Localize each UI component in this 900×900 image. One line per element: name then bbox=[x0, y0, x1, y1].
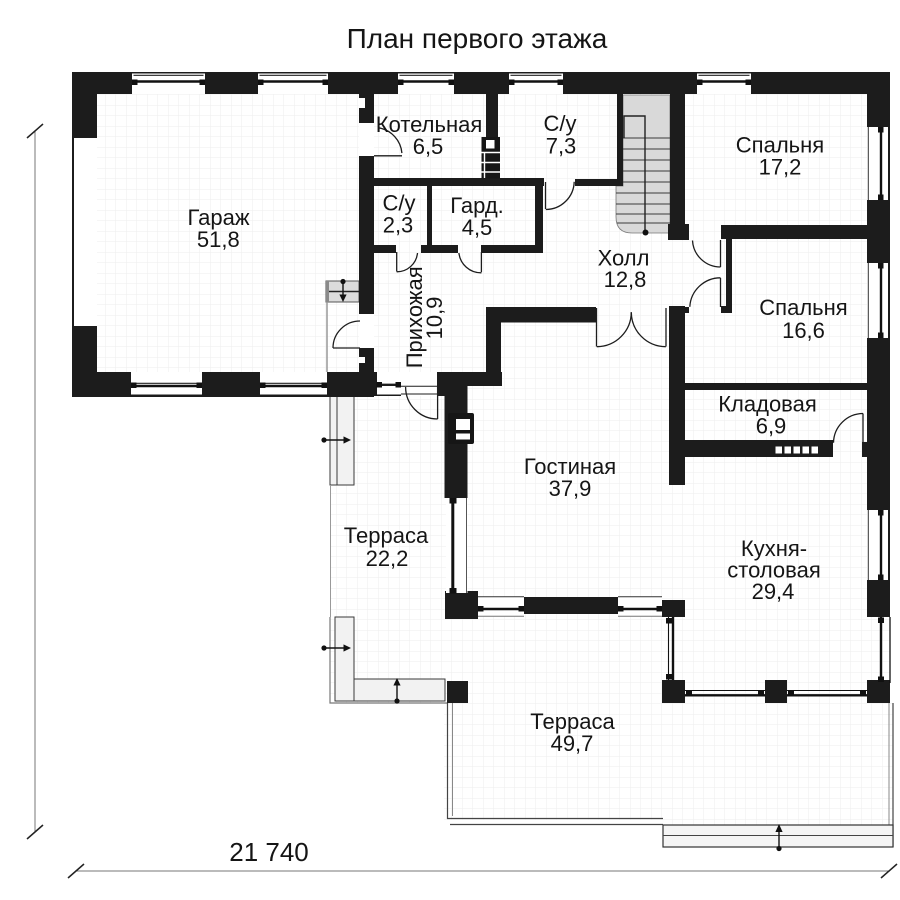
svg-text:Спальня: Спальня bbox=[759, 295, 847, 320]
svg-text:Терраса: Терраса bbox=[344, 523, 429, 548]
svg-text:7,3: 7,3 bbox=[546, 134, 577, 159]
svg-text:16,6: 16,6 bbox=[782, 318, 825, 343]
svg-text:29,4: 29,4 bbox=[752, 579, 795, 604]
svg-text:План первого этажа: План первого этажа bbox=[347, 23, 608, 54]
svg-text:49,7: 49,7 bbox=[551, 731, 594, 756]
svg-text:4,5: 4,5 bbox=[462, 215, 493, 240]
svg-text:С/у: С/у bbox=[544, 111, 577, 136]
svg-text:12,8: 12,8 bbox=[604, 267, 647, 292]
svg-text:2,3: 2,3 bbox=[383, 213, 414, 238]
svg-text:6,5: 6,5 bbox=[413, 134, 444, 159]
svg-text:6,9: 6,9 bbox=[756, 414, 787, 439]
svg-text:10,9: 10,9 bbox=[422, 297, 447, 340]
svg-text:37,9: 37,9 bbox=[549, 476, 592, 501]
svg-text:21 740: 21 740 bbox=[229, 837, 309, 867]
svg-text:17,2: 17,2 bbox=[759, 155, 802, 180]
svg-text:51,8: 51,8 bbox=[197, 227, 240, 252]
svg-text:22,2: 22,2 bbox=[366, 546, 409, 571]
